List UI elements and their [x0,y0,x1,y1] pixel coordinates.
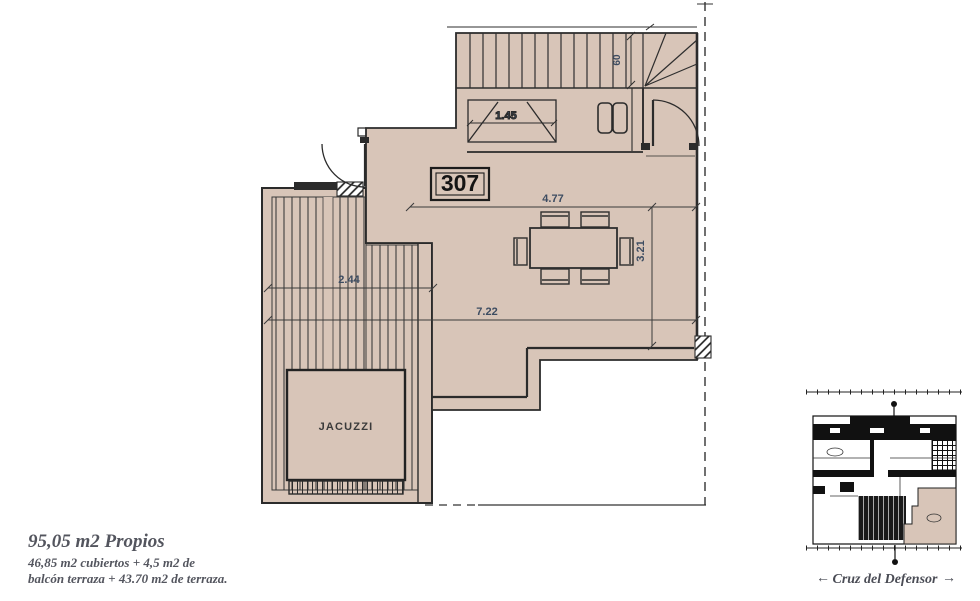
terrace-door-swing [322,144,365,187]
street-arrow-left: ← [816,571,830,586]
dim-label-321: 3.21 [635,240,647,261]
jacuzzi-step-band [289,481,403,494]
key-plan-pin-bottom [892,559,898,565]
deck-top-wall-band [294,182,337,190]
area-title: 95,05 m2 Propios [28,531,165,552]
key-plan: ← Cruz del Defensor → [806,392,962,587]
floor-plan-page: JACUZZI [0,0,980,601]
dim-label-477: 4.77 [542,193,563,205]
dim-label-145: 1.45 [495,110,516,122]
area-note-line2: balcón terraza + 43.70 m2 de terraza. [28,571,228,586]
door-hinge-block [360,137,369,143]
key-plan-pin-top [891,401,897,407]
area-notes: 95,05 m2 Propios 46,85 m2 cubiertos + 4,… [27,531,228,586]
floor-plan-canvas: JACUZZI [0,0,980,601]
dim-label-722: 7.22 [476,306,497,318]
dim-label-244: 2.44 [338,274,360,286]
wall-jog [358,128,366,136]
terrace-door-arc [322,128,369,187]
door-jamb-left [641,143,650,150]
wall-hatch-right [695,336,711,358]
area-note-line1: 46,85 m2 cubiertos + 4,5 m2 de [27,555,195,570]
street-arrow-right: → [942,571,956,586]
jacuzzi-label: JACUZZI [319,421,374,433]
dining-table [530,228,617,268]
street-label: Cruz del Defensor [832,572,938,587]
dim-label-60: 60 [612,54,623,66]
deck-board-gap [323,197,333,370]
unit-number: 307 [441,170,479,196]
door-jamb-right [689,143,697,150]
